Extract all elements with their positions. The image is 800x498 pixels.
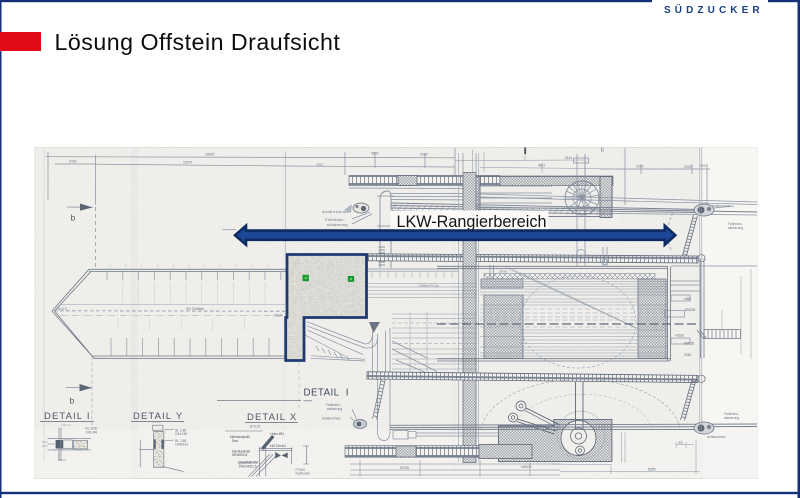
svg-text:300: 300: [678, 441, 683, 445]
svg-text:7017: 7017: [316, 163, 324, 167]
svg-text:+4510: +4510: [520, 464, 532, 469]
svg-text:2000: 2000: [684, 165, 692, 169]
svg-text:500: 500: [700, 164, 706, 168]
svg-text:18000: 18000: [205, 153, 215, 157]
svg-text:3*1.25: 3*1.25: [152, 420, 161, 424]
svg-text:b: b: [601, 148, 604, 154]
svg-text:1060: 1060: [684, 297, 691, 301]
svg-text:3500: 3500: [371, 152, 379, 156]
svg-text:säuberung: säuberung: [327, 222, 348, 227]
svg-text:-3t+0.5: -3t+0.5: [56, 307, 67, 311]
svg-text:140.10x4x1: 140.10x4x1: [270, 444, 287, 448]
svg-text:5250: 5250: [648, 468, 656, 472]
svg-text:5700: 5700: [400, 465, 410, 470]
svg-text:8140: 8140: [565, 156, 572, 160]
svg-text:2010: 2010: [684, 353, 691, 357]
svg-text:Lösung Offstein Draufsicht: Lösung Offstein Draufsicht: [55, 29, 341, 55]
svg-text:DETAIL X: DETAIL X: [247, 412, 297, 423]
svg-text:LKW-Rangierbereich: LKW-Rangierbereich: [397, 213, 547, 231]
svg-text:3.5N0a F0.11a: 3.5N0a F0.11a: [419, 284, 439, 288]
svg-text:Anfahrschutz: Anfahrschutz: [322, 417, 341, 421]
svg-text:DIN 438: DIN 438: [175, 432, 187, 436]
svg-text:säuberung: säuberung: [728, 226, 743, 230]
svg-text:DM226: DM226: [684, 342, 695, 346]
svg-text:+2010: +2010: [675, 334, 684, 338]
svg-text:DETAIL I: DETAIL I: [304, 388, 349, 399]
svg-text:28700: 28700: [499, 270, 508, 274]
svg-text:Fußboden: Fußboden: [296, 472, 311, 476]
svg-text:säuberung: säuberung: [327, 407, 342, 411]
svg-text:DIN4243: DIN4243: [175, 442, 188, 446]
svg-text:Anfahrschutz: Anfahrschutz: [712, 204, 731, 208]
svg-text:Holm #51: Holm #51: [270, 432, 284, 436]
svg-text:DIN 248: DIN 248: [86, 431, 98, 435]
svg-text:Dea: Dea: [232, 439, 238, 443]
svg-text:SÜDZUCKER: SÜDZUCKER: [664, 3, 764, 16]
svg-text:Anfahrschutz: Anfahrschutz: [707, 435, 726, 439]
svg-text:DM226: DM226: [685, 308, 696, 312]
svg-text:4340: 4340: [420, 153, 428, 157]
svg-text:4812: 4812: [538, 164, 545, 168]
svg-text:b: b: [70, 396, 75, 406]
svg-text:2N Gefälle: 2N Gefälle: [186, 307, 204, 311]
svg-text:b: b: [71, 213, 76, 223]
svg-text:140x140x1.5: 140x140x1.5: [238, 464, 256, 468]
svg-text:2400: 2400: [69, 160, 77, 164]
svg-text:B=0.25: B=0.25: [250, 425, 260, 429]
svg-text:2010: 2010: [274, 314, 282, 318]
svg-text:DETAIL I: DETAIL I: [44, 411, 91, 422]
svg-text:DIN4002.8: DIN4002.8: [232, 453, 247, 457]
svg-text:11879: 11879: [183, 161, 192, 165]
svg-text:2000: 2000: [636, 165, 644, 169]
svg-text:Anfahrschutz: Anfahrschutz: [322, 209, 349, 214]
svg-text:säuberung: säuberung: [724, 416, 739, 420]
svg-text:3-0.1-2: 3-0.1-2: [61, 423, 71, 427]
